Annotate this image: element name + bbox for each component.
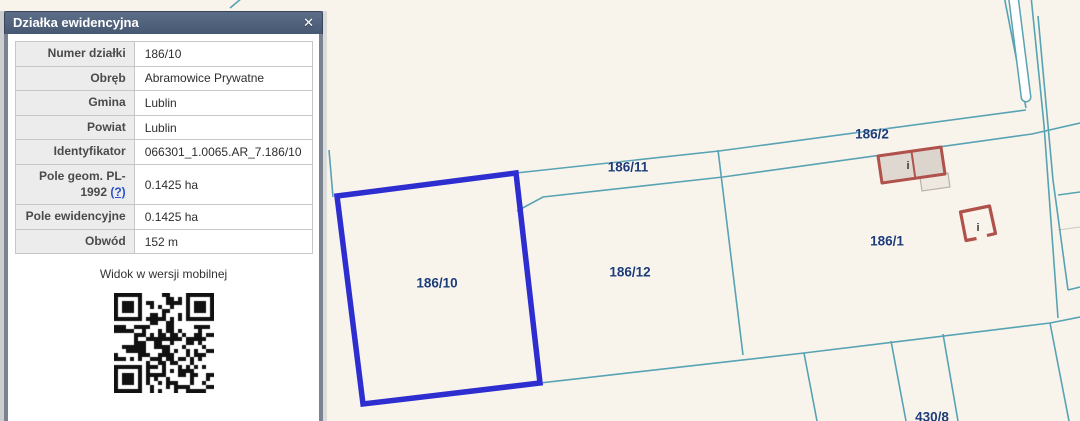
attr-value: 066301_1.0065.AR_7.186/10 <box>134 140 312 165</box>
mobile-view-caption: Widok w wersji mobilnej <box>8 267 319 281</box>
table-row: Gmina Lublin <box>15 91 312 116</box>
attr-value: Lublin <box>134 91 312 116</box>
attr-label: Gmina <box>15 91 134 116</box>
attr-value: Abramowice Prywatne <box>134 66 312 91</box>
table-row: Pole geom. PL-1992 (?) 0.1425 ha <box>15 164 312 204</box>
table-row: Identyfikator 066301_1.0065.AR_7.186/10 <box>15 140 312 165</box>
qr-code[interactable] <box>114 293 214 393</box>
attr-value: Lublin <box>134 115 312 140</box>
attr-label: Pole ewidencyjne <box>15 205 134 230</box>
parcel-boundary-line <box>1050 323 1069 421</box>
table-row: Numer działki 186/10 <box>15 42 312 67</box>
table-row: Obwód 152 m <box>15 229 312 254</box>
close-icon[interactable]: ✕ <box>303 12 314 34</box>
parcel-boundary-line-south <box>540 317 1080 383</box>
attr-label: Identyfikator <box>15 140 134 165</box>
attr-label: Obręb <box>15 66 134 91</box>
parcel-boundary-line-186-11-south <box>517 123 1080 211</box>
attr-label: Obwód <box>15 229 134 254</box>
parcel-boundary-line <box>1068 287 1080 290</box>
parcel-boundary-line <box>943 334 958 421</box>
road-parcel-east-line <box>1031 0 1058 318</box>
popup-header[interactable]: Działka ewidencyjna ✕ <box>4 11 323 34</box>
parcel-attributes-table: Numer działki 186/10 Obręb Abramowice Pr… <box>15 41 313 254</box>
qr-code-container <box>8 293 319 398</box>
parcel-boundary-line <box>329 150 333 197</box>
attr-value: 152 m <box>134 229 312 254</box>
attr-label: Powiat <box>15 115 134 140</box>
parcel-boundary-line <box>230 0 242 8</box>
parcel-info-popup: Działka ewidencyjna ✕ Numer działki 186/… <box>4 11 323 421</box>
parcel-boundary-line <box>1058 192 1080 195</box>
parcel-boundary-line <box>804 353 817 421</box>
parcel-divider-186-12-186-1 <box>718 150 743 355</box>
attr-value: 0.1425 ha <box>134 164 312 204</box>
attr-value: 186/10 <box>134 42 312 67</box>
attr-value: 0.1425 ha <box>134 205 312 230</box>
selected-parcel-186-10[interactable] <box>337 173 540 404</box>
help-link[interactable]: (?) <box>110 185 125 199</box>
table-row: Powiat Lublin <box>15 115 312 140</box>
table-row: Pole ewidencyjne 0.1425 ha <box>15 205 312 230</box>
table-row: Obręb Abramowice Prywatne <box>15 66 312 91</box>
popup-title: Działka ewidencyjna <box>13 12 139 34</box>
parcel-boundary-line <box>891 341 906 421</box>
building-outline[interactable] <box>961 206 996 241</box>
geoportal-screen: 186/11186/2186/12186/1186/10430/8 i i Dz… <box>0 0 1080 421</box>
minor-boundary-line <box>1058 227 1080 230</box>
attr-label: Pole geom. PL-1992 (?) <box>15 164 134 204</box>
attr-label: Numer działki <box>15 42 134 67</box>
parcel-boundary-line-186-11-north <box>516 110 1026 173</box>
